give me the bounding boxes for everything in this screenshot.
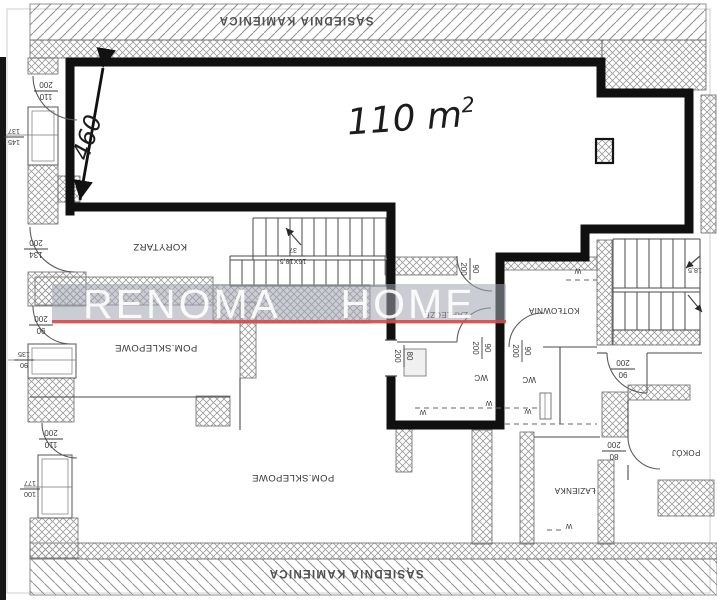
scan-edge-bar — [0, 57, 6, 600]
room-label-kotlownia: KOTŁOWNIA — [528, 306, 579, 315]
svg-text:134: 134 — [29, 250, 43, 259]
svg-text:177: 177 — [24, 479, 36, 488]
svg-text:90: 90 — [471, 265, 480, 274]
svg-text:200: 200 — [471, 341, 480, 355]
svg-text:90: 90 — [523, 347, 532, 356]
vent-mark-2: W — [485, 399, 492, 408]
svg-text:100: 100 — [24, 490, 36, 499]
svg-text:200: 200 — [44, 428, 58, 437]
radiator — [540, 393, 551, 419]
area-label: 110 m2 — [346, 93, 477, 144]
stairs-direction-arrow — [286, 228, 301, 245]
watermark-red-line — [52, 320, 506, 323]
svg-text:200: 200 — [39, 80, 53, 89]
staircase-right — [613, 239, 702, 345]
neighbor-band-bottom: SĄSIEDNIA KAMIENICA — [30, 543, 717, 595]
neighbor-label-top: SĄSIEDNIA KAMIENICA — [218, 14, 373, 26]
svg-text:145: 145 — [8, 138, 20, 147]
svg-text:137: 137 — [8, 127, 20, 136]
door-arc-wc-kotlownia — [509, 313, 543, 347]
stairs-dim-top: 16X18,5 — [280, 257, 307, 266]
room-label-wc-kotlownia: WC — [522, 375, 536, 384]
door-dim-4: 90 200 — [459, 258, 480, 280]
door-dim-0: 110 200 — [34, 80, 58, 101]
door-arc-pokoj — [628, 437, 660, 469]
svg-text:110: 110 — [39, 92, 52, 101]
svg-text:200: 200 — [511, 344, 520, 358]
floor-plan-drawing: SĄSIEDNIA KAMIENICA SĄSIEDNIA KAMIENICA — [0, 0, 717, 600]
area-annotation: 110 m2 — [346, 93, 477, 144]
window-2 — [8, 344, 76, 378]
partition-walls — [30, 342, 702, 480]
door-arcs — [30, 76, 660, 469]
room-label-pom-sklepowe-bottom: POM.SKLEPOWE — [252, 472, 334, 483]
floor-plan-scan: SĄSIEDNIA KAMIENICA SĄSIEDNIA KAMIENICA — [0, 0, 717, 600]
room-label-lazienka: ŁAZIENKA — [554, 486, 595, 495]
staircase-main — [230, 218, 390, 286]
vent-mark-4: W — [574, 267, 581, 276]
room-label-pom-sklepowe-top: POM.SKLEPOWE — [115, 342, 197, 353]
room-label-wc-inner: WC — [474, 373, 488, 382]
svg-text:110: 110 — [44, 440, 57, 449]
neighbor-label-bottom: SĄSIEDNIA KAMIENICA — [268, 567, 423, 579]
stairs-right-dim: 18,5 — [688, 266, 702, 275]
svg-text:200: 200 — [34, 314, 48, 323]
svg-text:90: 90 — [483, 344, 492, 353]
svg-text:135: 135 — [18, 350, 30, 359]
svg-text:200: 200 — [607, 440, 621, 449]
stairs-dim-bottom: 37 — [289, 246, 297, 255]
door-dim-9: 80 200 — [602, 440, 626, 461]
svg-text:80: 80 — [405, 352, 414, 361]
room-label-korytarz: KORYTARZ — [133, 241, 187, 252]
vent-mark-5: W — [565, 522, 572, 531]
svg-text:200: 200 — [459, 262, 468, 276]
door-dim-5: 90 200 — [471, 337, 492, 359]
door-dim-2: 90 200 — [29, 314, 53, 335]
svg-text:90: 90 — [36, 326, 45, 335]
watermark: RENOMA HOME — [52, 281, 506, 327]
door-dim-1: 134 200 — [24, 238, 48, 259]
svg-text:200: 200 — [616, 358, 630, 367]
vent-mark-3: W — [524, 407, 531, 416]
svg-text:90: 90 — [20, 361, 28, 370]
room-label-pokoj: POKÓJ — [672, 448, 701, 457]
pillar — [596, 139, 613, 163]
svg-text:80: 80 — [609, 452, 618, 461]
window-dim-2: 100 177 — [20, 479, 40, 499]
svg-text:200: 200 — [29, 238, 43, 247]
door-arc-2 — [30, 227, 75, 272]
door-dim-6: 90 200 — [511, 340, 532, 362]
svg-text:200: 200 — [393, 349, 402, 363]
svg-text:90: 90 — [618, 370, 627, 379]
vent-mark-1: W — [419, 408, 426, 417]
